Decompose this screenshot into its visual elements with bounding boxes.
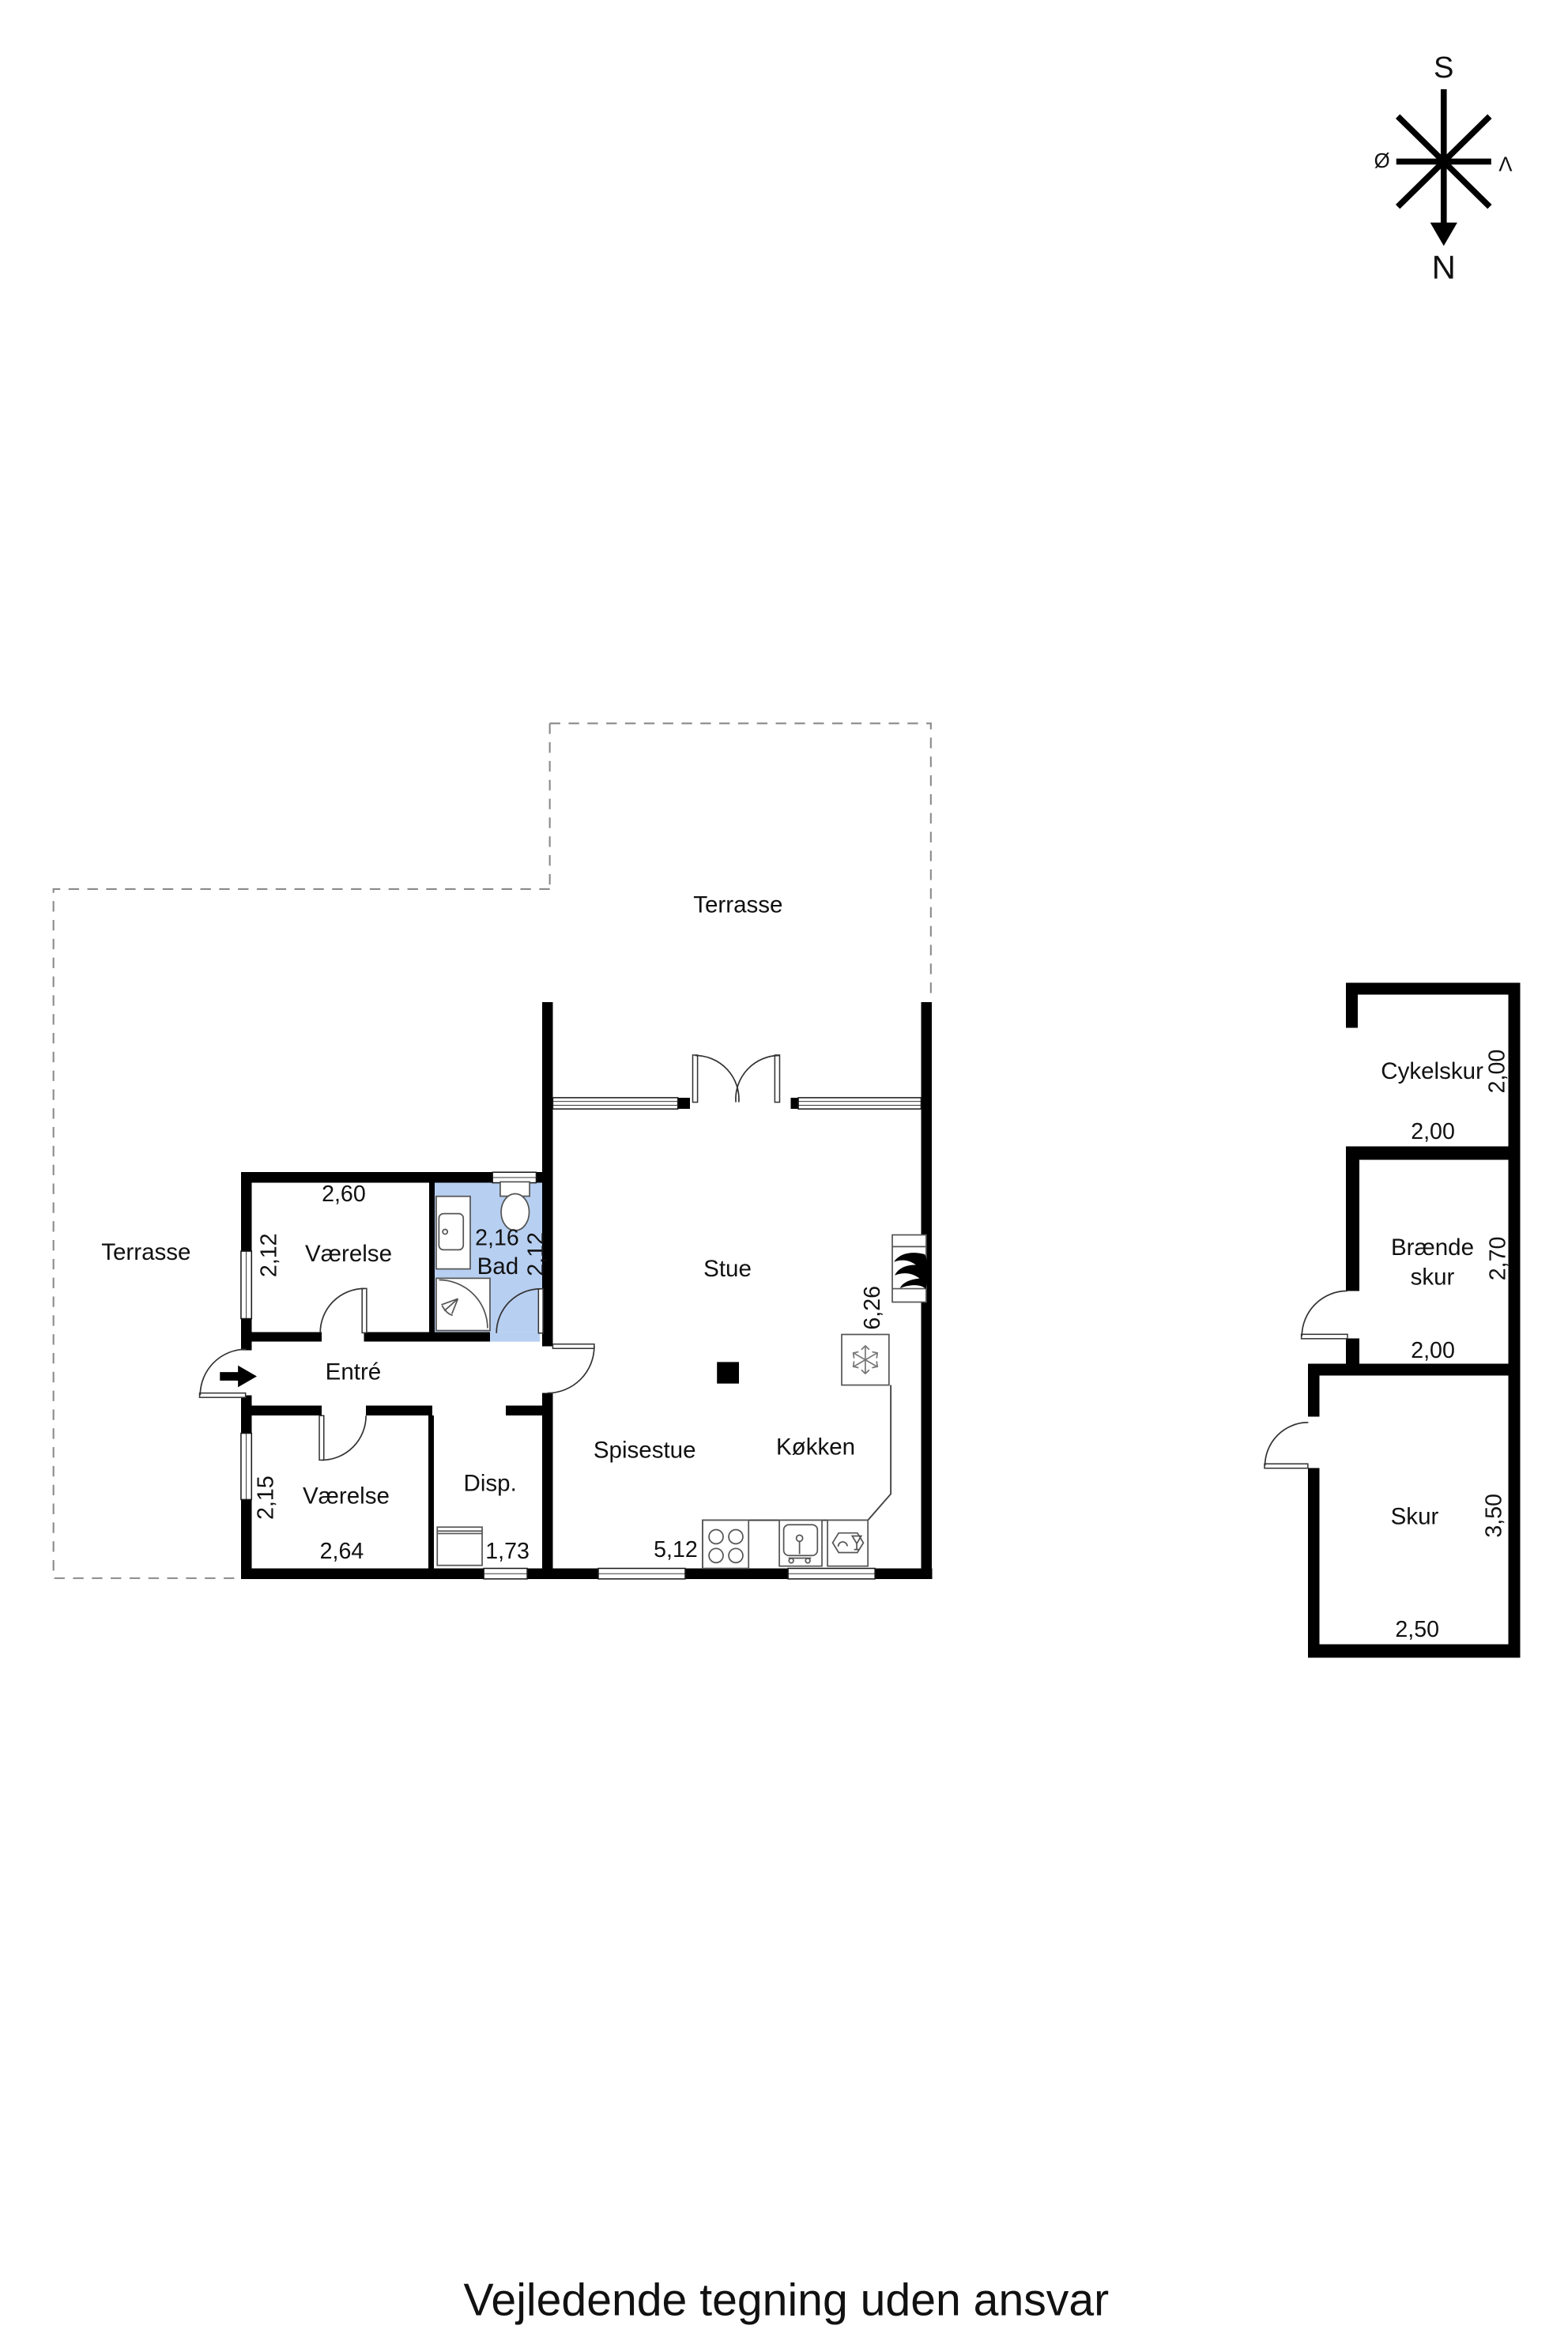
terrace-top-outline — [550, 723, 931, 1000]
floor-plan-drawing: Terrasse Terrasse Stue 6,26 Spisestue 5,… — [0, 0, 1568, 2352]
entrance-arrow-icon — [220, 1366, 257, 1387]
room-label-disp: Disp. — [464, 1470, 517, 1496]
hall-to-livingroom-door — [548, 1344, 594, 1393]
sink-icon — [436, 1197, 470, 1269]
dishwasher-icon — [827, 1520, 868, 1566]
dim-skur-width: 2,50 — [1395, 1617, 1439, 1642]
dim-vaerelse-bottom-depth: 2,15 — [254, 1476, 279, 1520]
window-stue-north-left — [552, 1098, 677, 1109]
room-label-braendeskur-line2: skur — [1411, 1264, 1455, 1290]
room-label-stue: Stue — [703, 1256, 752, 1282]
window-stue-north-right — [798, 1098, 921, 1109]
compass-north-arrowhead — [1430, 223, 1457, 247]
bedroom-top-door — [320, 1288, 367, 1332]
room-label-vaerelse-top: Værelse — [305, 1241, 392, 1267]
room-label-vaerelse-bottom: Værelse — [303, 1483, 390, 1509]
dim-vaerelse-bottom-width: 2,64 — [320, 1539, 364, 1564]
kitchen-sink-icon — [779, 1520, 822, 1566]
dim-spisestue-width: 5,12 — [654, 1537, 698, 1562]
window-south-koekken — [788, 1568, 875, 1578]
dim-stue-depth: 6,26 — [860, 1286, 885, 1330]
window-left-top — [241, 1251, 251, 1318]
compass-north-label: N — [1432, 249, 1456, 286]
stove-icon — [703, 1520, 748, 1568]
terrace-french-doors — [693, 1055, 780, 1102]
room-label-cykelskur: Cykelskur — [1381, 1058, 1483, 1084]
compass-west-label: V — [1498, 153, 1512, 175]
wood-stove-icon — [892, 1235, 929, 1302]
braendeskur-door — [1302, 1291, 1347, 1338]
dim-disp-width: 1,73 — [485, 1539, 530, 1564]
floor-plan-page: Terrasse Terrasse Stue 6,26 Spisestue 5,… — [0, 0, 1568, 2352]
compass-south-label: S — [1434, 51, 1453, 85]
room-label-entre: Entré — [326, 1359, 382, 1385]
room-label-bad: Bad — [477, 1253, 519, 1280]
room-label-terrasse-left: Terrasse — [101, 1239, 190, 1265]
dim-bad-width: 2,16 — [475, 1226, 519, 1251]
compass-east-label: Ø — [1374, 150, 1390, 172]
dim-vaerelse-top-depth: 2,12 — [257, 1233, 282, 1277]
dim-cykelskur-width: 2,00 — [1411, 1119, 1455, 1144]
room-label-terrasse-top: Terrasse — [693, 892, 782, 918]
chimney-block — [717, 1362, 739, 1383]
dim-braendeskur-depth: 2,70 — [1485, 1237, 1510, 1281]
bathroom-door-gap-fill — [490, 1332, 540, 1341]
disclaimer-text: Vejledende tegning uden ansvar — [463, 2275, 1109, 2326]
compass-rose-icon: S N Ø V — [1374, 51, 1513, 285]
fridge-icon — [842, 1334, 889, 1385]
room-label-braendeskur-line1: Brænde — [1391, 1234, 1474, 1261]
dim-braendeskur-width: 2,00 — [1411, 1338, 1455, 1363]
dim-cykelskur-depth: 2,00 — [1484, 1050, 1510, 1094]
window-bath-north — [492, 1172, 536, 1182]
bedroom-bottom-door — [319, 1415, 366, 1460]
dim-bad-depth: 2,12 — [524, 1232, 549, 1276]
room-label-spisestue: Spisestue — [594, 1438, 696, 1464]
room-label-skur: Skur — [1391, 1503, 1439, 1529]
dim-skur-depth: 3,50 — [1481, 1494, 1506, 1538]
room-label-koekken: Køkken — [776, 1434, 855, 1461]
disp-cabinet-icon — [437, 1527, 482, 1565]
toilet-icon — [500, 1182, 530, 1231]
shower-icon — [436, 1278, 490, 1330]
window-south-spisestue — [598, 1568, 685, 1578]
window-south-disp — [484, 1568, 527, 1578]
skur-door — [1265, 1423, 1308, 1468]
dim-vaerelse-top-width: 2,60 — [322, 1182, 366, 1207]
window-left-bottom — [241, 1434, 251, 1500]
